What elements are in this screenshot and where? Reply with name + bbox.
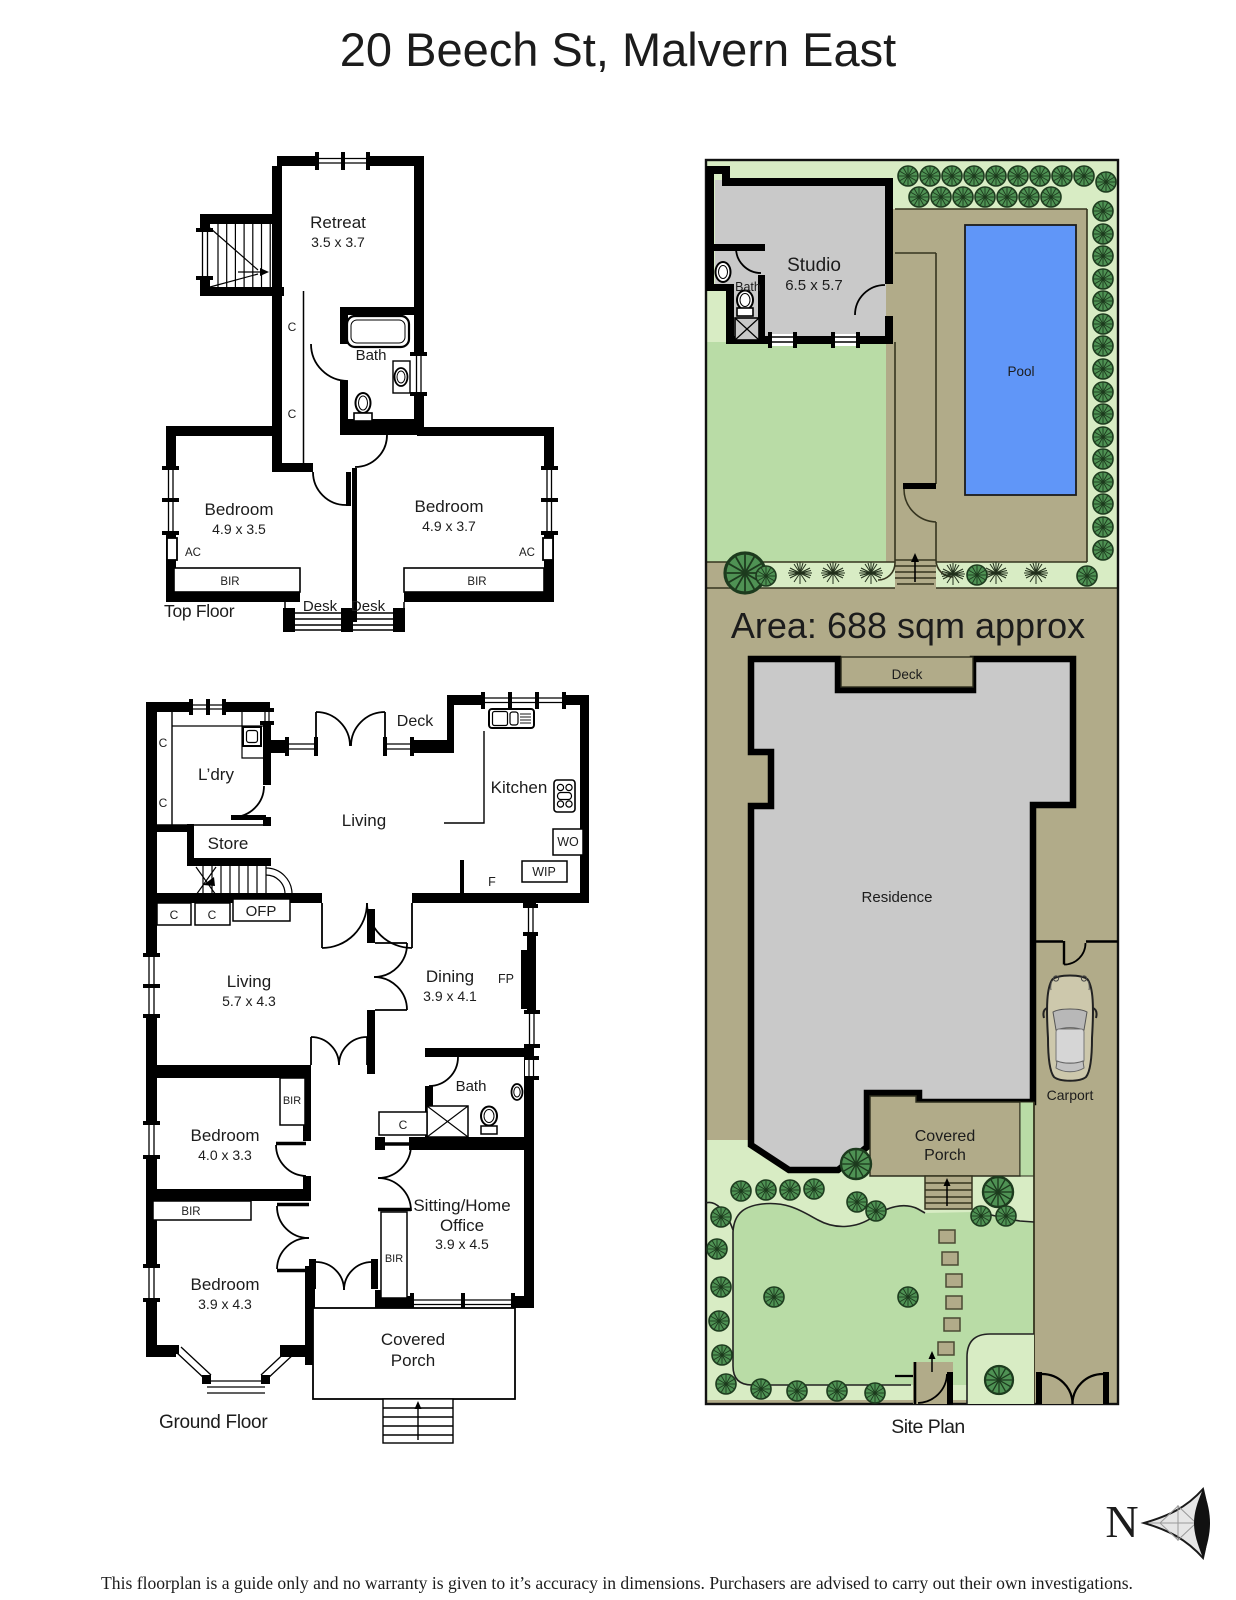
svg-text:3.5 x 3.7: 3.5 x 3.7 bbox=[311, 234, 365, 250]
svg-text:5.7 x 4.3: 5.7 x 4.3 bbox=[222, 993, 276, 1009]
svg-text:AC: AC bbox=[519, 547, 535, 559]
svg-text:Covered: Covered bbox=[915, 1128, 975, 1145]
svg-text:Kitchen: Kitchen bbox=[491, 778, 548, 797]
svg-text:Site Plan: Site Plan bbox=[891, 1416, 965, 1438]
svg-text:Porch: Porch bbox=[391, 1351, 435, 1370]
svg-text:Sitting/Home: Sitting/Home bbox=[413, 1196, 510, 1215]
svg-text:Covered: Covered bbox=[381, 1330, 445, 1349]
svg-text:4.9 x 3.5: 4.9 x 3.5 bbox=[212, 521, 266, 537]
svg-text:Ground Floor: Ground Floor bbox=[159, 1412, 268, 1433]
svg-text:4.0 x 3.3: 4.0 x 3.3 bbox=[198, 1147, 252, 1163]
svg-text:AC: AC bbox=[185, 547, 201, 559]
svg-text:Deck: Deck bbox=[892, 667, 923, 682]
svg-text:Bath: Bath bbox=[735, 280, 761, 294]
svg-text:C: C bbox=[399, 1118, 408, 1132]
svg-text:6.5 x 5.7: 6.5 x 5.7 bbox=[785, 277, 843, 294]
svg-text:C: C bbox=[208, 908, 217, 922]
svg-text:Bedroom: Bedroom bbox=[191, 1275, 260, 1294]
svg-text:This floorplan is a guide only: This floorplan is a guide only and no wa… bbox=[101, 1573, 1133, 1593]
svg-text:L’dry: L’dry bbox=[198, 765, 234, 784]
svg-text:Retreat: Retreat bbox=[310, 213, 366, 232]
svg-text:BIR: BIR bbox=[220, 576, 239, 588]
svg-text:20 Beech St, Malvern East: 20 Beech St, Malvern East bbox=[340, 23, 896, 76]
svg-text:Pool: Pool bbox=[1007, 364, 1034, 379]
svg-text:C: C bbox=[170, 908, 179, 922]
svg-text:C: C bbox=[159, 736, 168, 750]
svg-text:Living: Living bbox=[227, 972, 271, 991]
svg-text:Bedroom: Bedroom bbox=[205, 500, 274, 519]
svg-text:BIR: BIR bbox=[283, 1095, 301, 1107]
svg-text:C: C bbox=[288, 320, 297, 334]
svg-text:C: C bbox=[159, 796, 168, 810]
svg-text:Living: Living bbox=[342, 811, 386, 830]
svg-text:3.9 x 4.3: 3.9 x 4.3 bbox=[198, 1296, 252, 1312]
svg-text:Deck: Deck bbox=[397, 713, 434, 730]
svg-text:BIR: BIR bbox=[467, 576, 486, 588]
svg-text:OFP: OFP bbox=[246, 903, 277, 920]
svg-text:FP: FP bbox=[498, 972, 514, 986]
svg-text:Store: Store bbox=[208, 834, 249, 853]
svg-text:WO: WO bbox=[557, 835, 579, 849]
svg-text:3.9 x 4.1: 3.9 x 4.1 bbox=[423, 988, 477, 1004]
svg-text:Studio: Studio bbox=[787, 255, 841, 276]
svg-text:Top Floor: Top Floor bbox=[164, 601, 235, 621]
svg-text:Residence: Residence bbox=[862, 889, 933, 906]
svg-text:Porch: Porch bbox=[924, 1147, 966, 1164]
svg-text:N: N bbox=[1105, 1496, 1138, 1547]
svg-text:Desk: Desk bbox=[351, 598, 386, 615]
svg-text:Desk: Desk bbox=[303, 598, 338, 615]
svg-text:WIP: WIP bbox=[532, 865, 556, 879]
svg-text:4.9 x 3.7: 4.9 x 3.7 bbox=[422, 518, 476, 534]
svg-text:3.9 x 4.5: 3.9 x 4.5 bbox=[435, 1236, 489, 1252]
svg-text:Bedroom: Bedroom bbox=[415, 497, 484, 516]
svg-text:Bedroom: Bedroom bbox=[191, 1126, 260, 1145]
svg-text:Carport: Carport bbox=[1047, 1087, 1094, 1103]
svg-text:Bath: Bath bbox=[356, 347, 387, 364]
svg-text:F: F bbox=[488, 875, 496, 889]
svg-text:BIR: BIR bbox=[181, 1206, 200, 1218]
svg-text:Dining: Dining bbox=[426, 967, 474, 986]
svg-text:BIR: BIR bbox=[385, 1253, 403, 1265]
svg-text:Bath: Bath bbox=[456, 1078, 487, 1095]
svg-text:Area: 688 sqm approx: Area: 688 sqm approx bbox=[731, 605, 1085, 646]
svg-text:Office: Office bbox=[440, 1216, 484, 1235]
svg-text:C: C bbox=[288, 407, 297, 421]
